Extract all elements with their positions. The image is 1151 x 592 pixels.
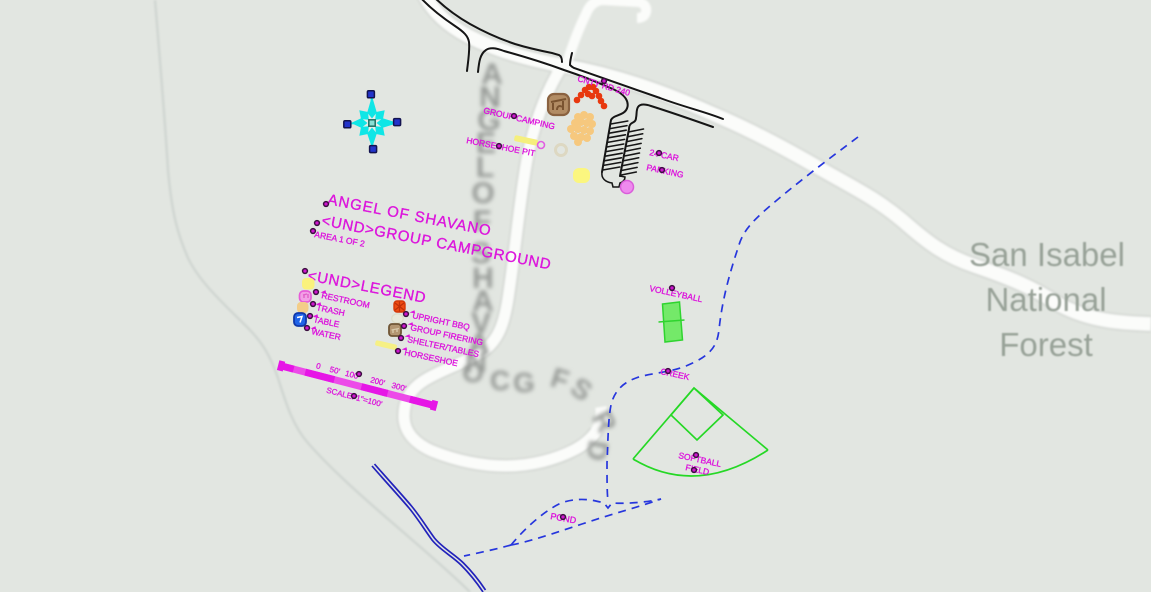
svg-text:O: O bbox=[462, 357, 484, 388]
svg-text:Forest: Forest bbox=[999, 326, 1093, 363]
svg-text:C: C bbox=[490, 365, 510, 396]
svg-text:G: G bbox=[513, 367, 535, 398]
svg-text:San Isabel: San Isabel bbox=[969, 236, 1125, 273]
svg-text:National: National bbox=[985, 281, 1106, 318]
